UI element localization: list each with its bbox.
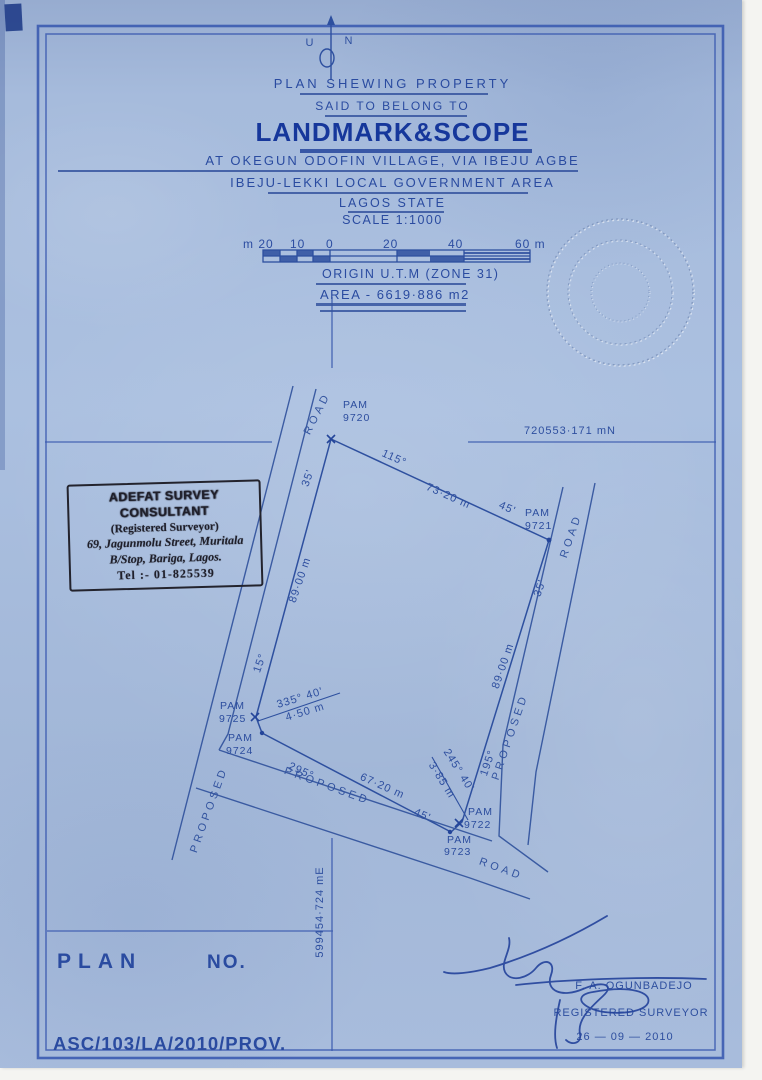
- beacon-9723: PAM: [447, 834, 472, 846]
- dist-7320: 73·20 m: [424, 481, 472, 511]
- beacon-9720: PAM: [343, 399, 368, 411]
- scale-label-10: 10: [290, 237, 305, 251]
- origin-underline: [316, 283, 466, 285]
- title-line4-underline: [58, 170, 578, 172]
- beacon-9722: PAM: [468, 806, 493, 818]
- scale-label-20: 20: [383, 237, 398, 251]
- min-35-e: 35': [532, 578, 549, 598]
- bearing-15: 15°: [251, 652, 269, 674]
- title-scale: SCALE 1:1000: [20, 213, 762, 227]
- title-line1-underline: [300, 93, 488, 95]
- title-line2: SAID TO BELONG TO: [20, 99, 762, 113]
- area-underline-1: [316, 303, 466, 306]
- beacon-9721: PAM: [525, 507, 550, 519]
- scale-label-40: 40: [448, 237, 463, 251]
- min-35-w: 35': [300, 468, 317, 488]
- beacon-9721-num: 9721: [525, 520, 552, 532]
- proposed-bottom: PROPOSED: [283, 765, 372, 807]
- owner-underline: [300, 149, 532, 153]
- area-underline-2: [320, 310, 466, 312]
- scanned-survey-plan-page: U N 720553·171 mN 599454·724 mE: [0, 0, 762, 1080]
- easting-label: 599454·724 mE: [314, 866, 326, 957]
- north-arrow-letter-n: N: [345, 35, 354, 47]
- beacon-9720-num: 9720: [343, 412, 370, 424]
- title-line4: AT OKEGUN ODOFIN VILLAGE, VIA IBEJU AGBE: [20, 153, 762, 168]
- dist-8900-e: 89·00 m: [490, 642, 517, 691]
- northing-label: 720553·171 mN: [524, 425, 616, 437]
- scale-bar: [263, 250, 530, 262]
- stamp-firm-name: ADEFAT SURVEY CONSULTANT: [71, 485, 258, 523]
- surveyor-rubber-stamp: ADEFAT SURVEY CONSULTANT (Registered Sur…: [67, 479, 264, 592]
- proposed-right: PROPOSED: [490, 692, 531, 781]
- road-bottom: ROAD: [477, 856, 524, 883]
- surveyor-title: REGISTERED SURVEYOR: [553, 1007, 708, 1019]
- scan-artifact: [4, 4, 22, 32]
- grid-lines: [45, 297, 716, 1051]
- scale-label-0: 0: [326, 237, 334, 251]
- owner-name: LANDMARK&SCOPE: [20, 117, 762, 148]
- scale-label-60: 60 m: [515, 237, 546, 251]
- beacon-9724-num: 9724: [226, 745, 253, 757]
- area-line: AREA - 6619·886 m2: [320, 287, 470, 302]
- beacon-9725: PAM: [220, 700, 245, 712]
- dist-8900-w: 89·00 m: [287, 556, 314, 605]
- beacon-9724: PAM: [228, 732, 253, 744]
- beacon-9722-num: 9722: [464, 819, 491, 831]
- embossed-seal: [547, 219, 694, 366]
- plan-label: PLAN: [57, 950, 142, 974]
- north-arrow-letter-u: U: [306, 37, 315, 49]
- beacon-9723-num: 9723: [444, 846, 471, 858]
- proposed-left: PROPOSED: [188, 765, 230, 854]
- survey-date: 26 — 09 — 2010: [576, 1031, 673, 1043]
- bearing-115: 115°: [380, 448, 409, 470]
- road-left: ROAD: [302, 391, 333, 437]
- title-line5: IBEJU-LEKKI LOCAL GOVERNMENT AREA: [20, 175, 762, 190]
- sheet-edge-shadow: [0, 0, 5, 470]
- title-line6: LAGOS STATE: [20, 196, 762, 210]
- title-line5-underline: [268, 192, 528, 194]
- scale-label-m20: m 20: [243, 237, 274, 251]
- origin-line: ORIGIN U.T.M (ZONE 31): [322, 267, 499, 281]
- beacon-9725-num: 9725: [219, 713, 246, 725]
- title-line1: PLAN SHEWING PROPERTY: [20, 76, 762, 91]
- min-45-ne: 45': [497, 499, 518, 517]
- plan-no-label: NO.: [207, 952, 247, 974]
- plan-number: ASC/103/LA/2010/PROV.: [53, 1033, 286, 1055]
